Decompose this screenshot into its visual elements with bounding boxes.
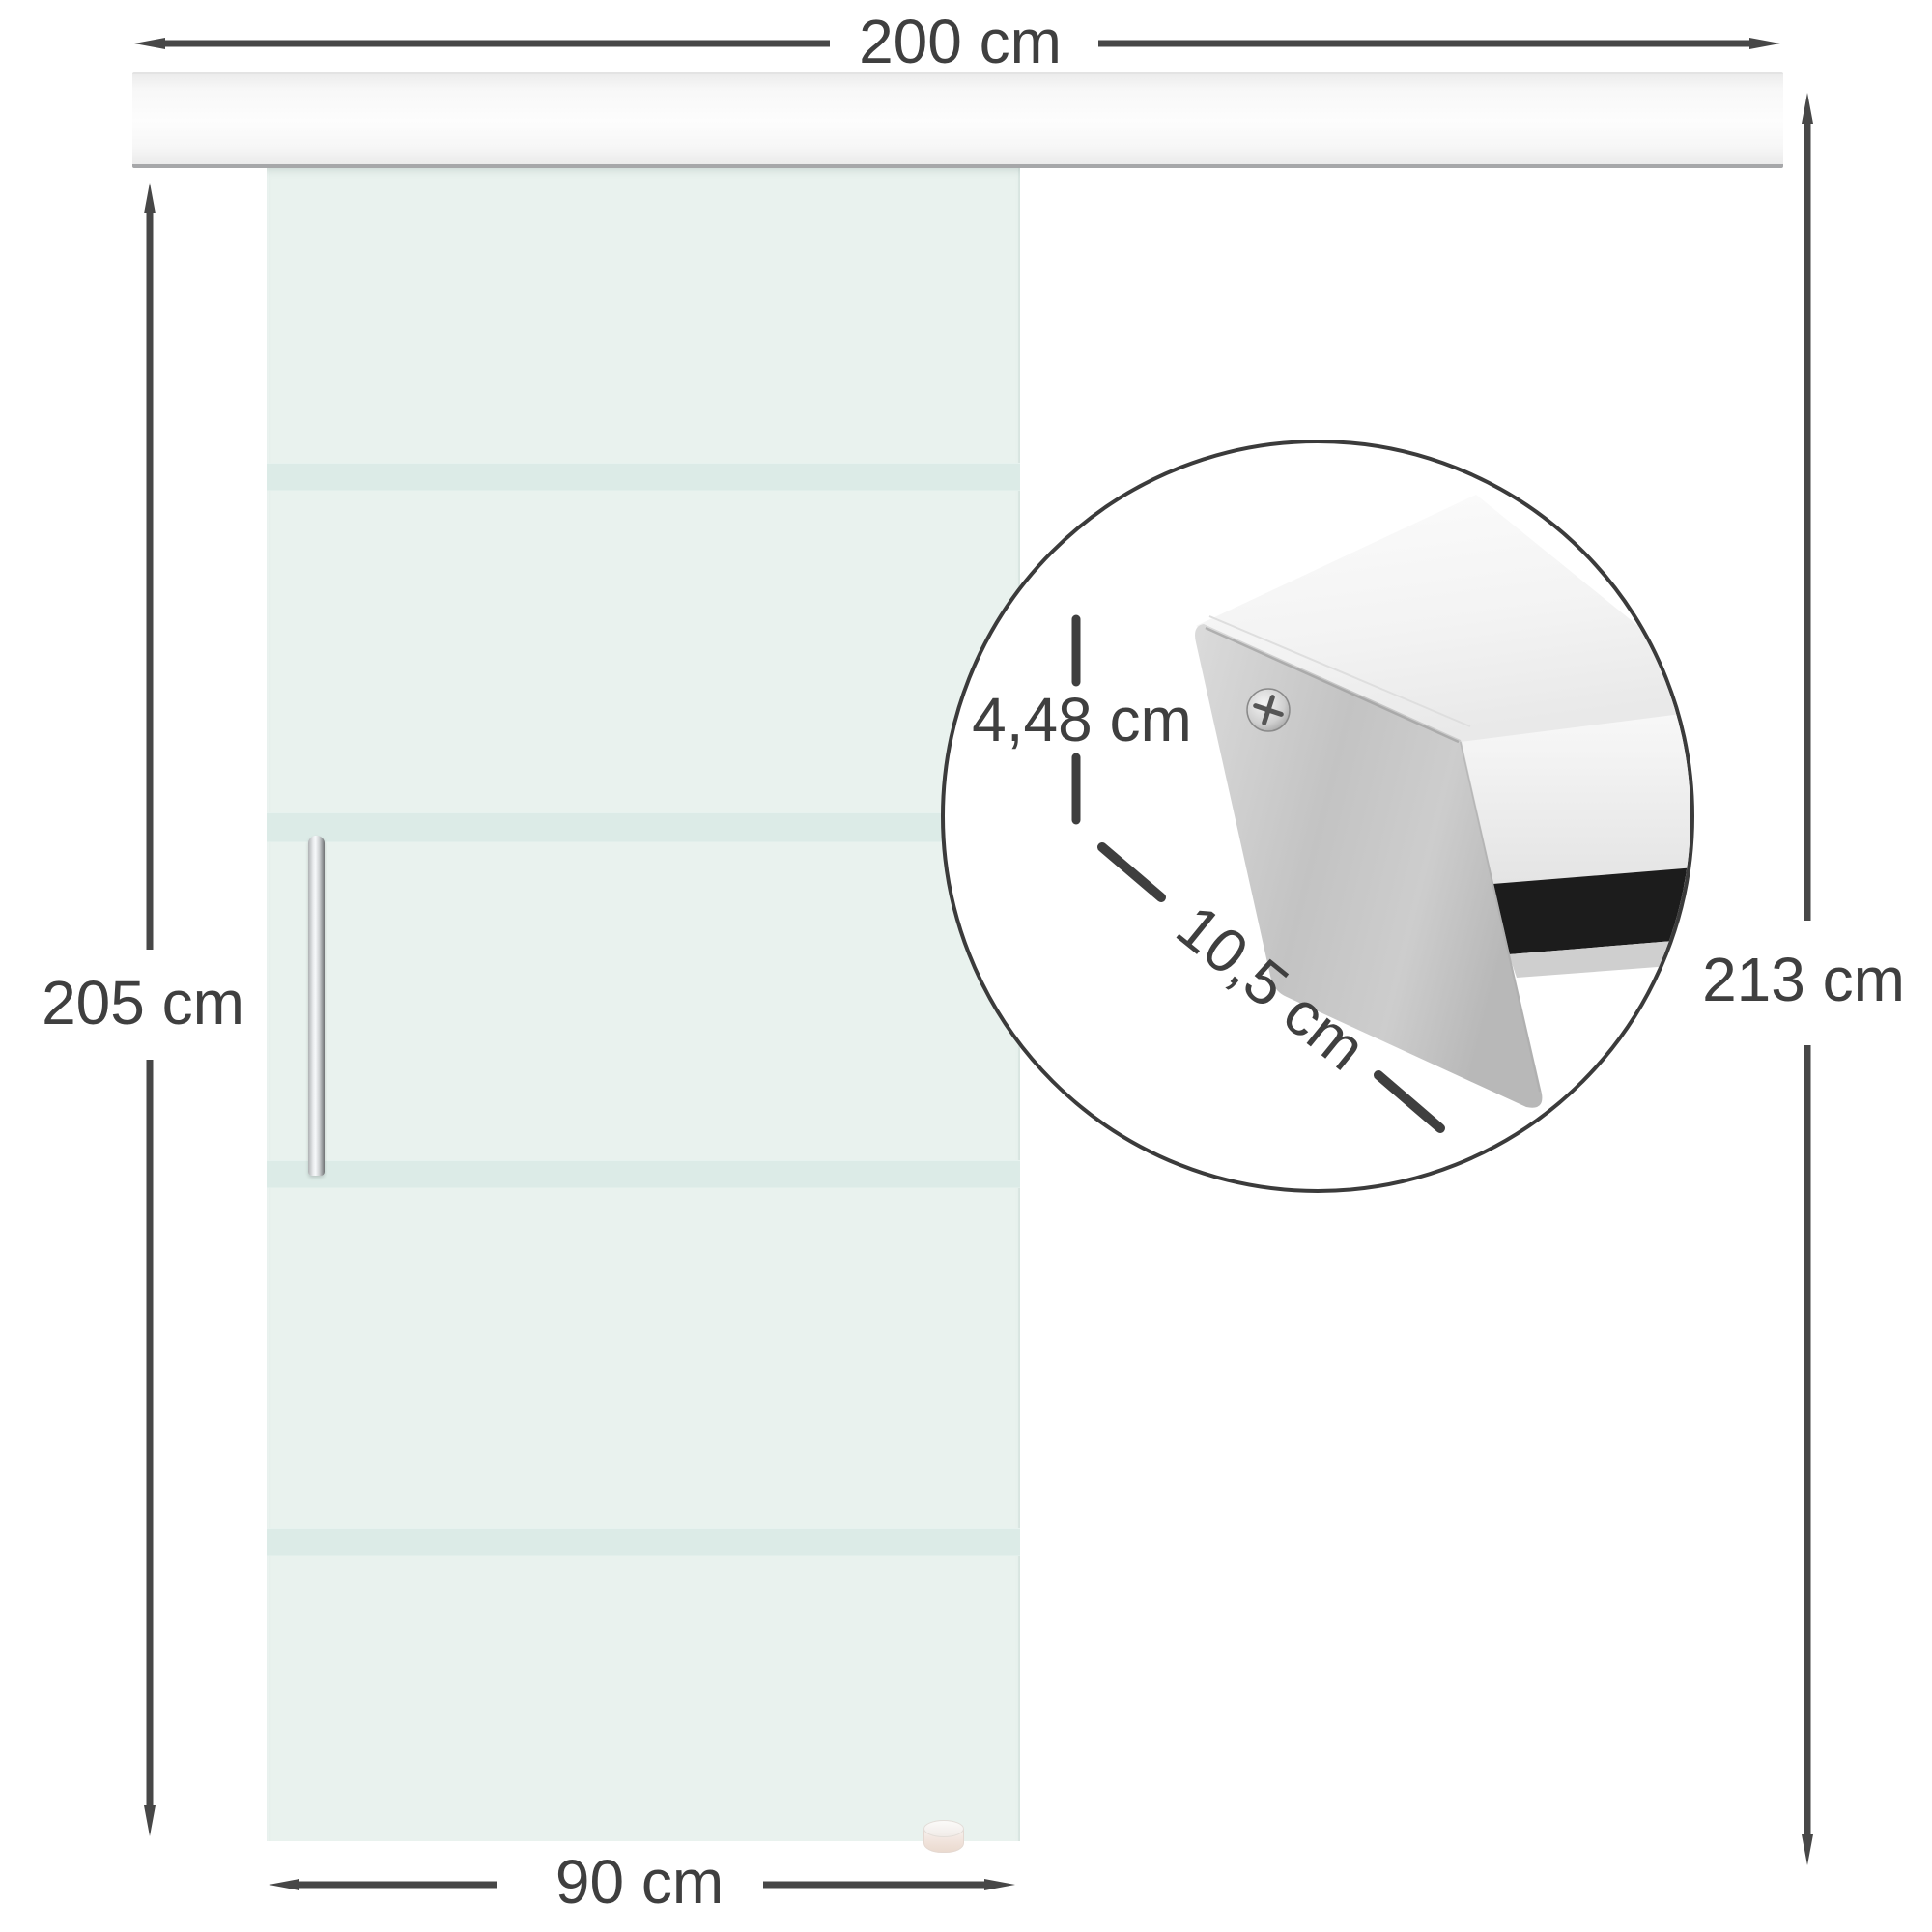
dim-label-door-width: 90 cm — [555, 1851, 724, 1913]
product-dimension-diagram: 200 cm 205 cm 213 cm 90 cm 4,48 cm 10,5 … — [0, 0, 1932, 1932]
dim-label-track-width: 200 cm — [859, 11, 1062, 72]
dim-label-door-height: 205 cm — [42, 972, 244, 1034]
dim-label-total-height: 213 cm — [1702, 949, 1905, 1010]
dimension-overlay — [0, 0, 1932, 1932]
screw — [1247, 689, 1290, 731]
detail-magnifier-circle — [943, 441, 1741, 1191]
dim-label-profile-height: 4,48 cm — [972, 689, 1192, 751]
profile-front-face — [1461, 712, 1696, 884]
